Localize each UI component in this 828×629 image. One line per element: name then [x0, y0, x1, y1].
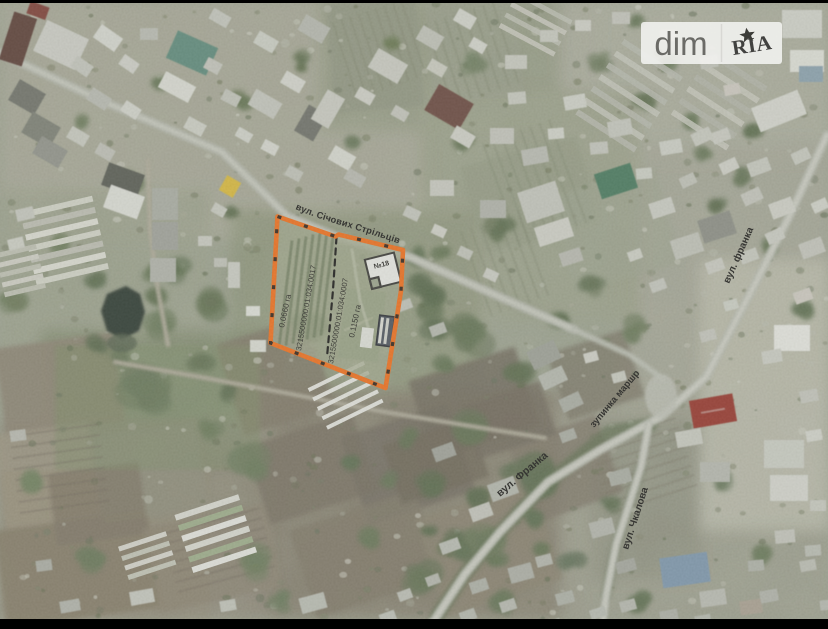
svg-text:dim: dim: [654, 25, 707, 62]
